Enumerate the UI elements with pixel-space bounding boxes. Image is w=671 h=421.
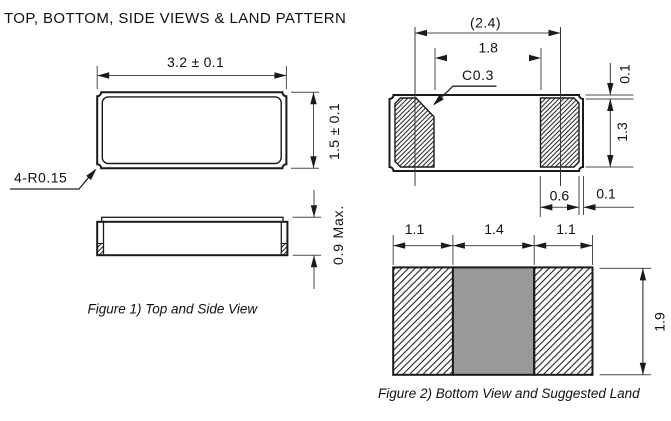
svg-text:0.1: 0.1	[617, 64, 633, 84]
svg-text:1.3: 1.3	[614, 122, 630, 142]
svg-text:0.9 Max.: 0.9 Max.	[330, 205, 346, 265]
svg-text:C0.3: C0.3	[462, 67, 494, 83]
svg-text:Figure 2) Bottom View and Sugg: Figure 2) Bottom View and Suggested Land	[378, 386, 640, 401]
svg-text:Figure 1) Top and Side View: Figure 1) Top and Side View	[88, 302, 259, 317]
svg-text:0.1: 0.1	[596, 186, 616, 202]
svg-text:0.6: 0.6	[550, 188, 570, 204]
svg-text:1.1: 1.1	[405, 221, 425, 237]
svg-text:1.4: 1.4	[484, 221, 504, 237]
svg-text:1.9: 1.9	[652, 312, 668, 332]
svg-text:4-R0.15: 4-R0.15	[14, 170, 67, 186]
svg-text:TOP, BOTTOM, SIDE VIEWS & LAND: TOP, BOTTOM, SIDE VIEWS & LAND PATTERN	[4, 10, 346, 27]
svg-text:(2.4): (2.4)	[470, 15, 501, 31]
svg-text:1.8: 1.8	[478, 39, 498, 55]
svg-text:1.1: 1.1	[556, 221, 576, 237]
svg-text:1.5 ± 0.1: 1.5 ± 0.1	[326, 103, 342, 160]
svg-text:3.2 ± 0.1: 3.2 ± 0.1	[167, 54, 224, 70]
